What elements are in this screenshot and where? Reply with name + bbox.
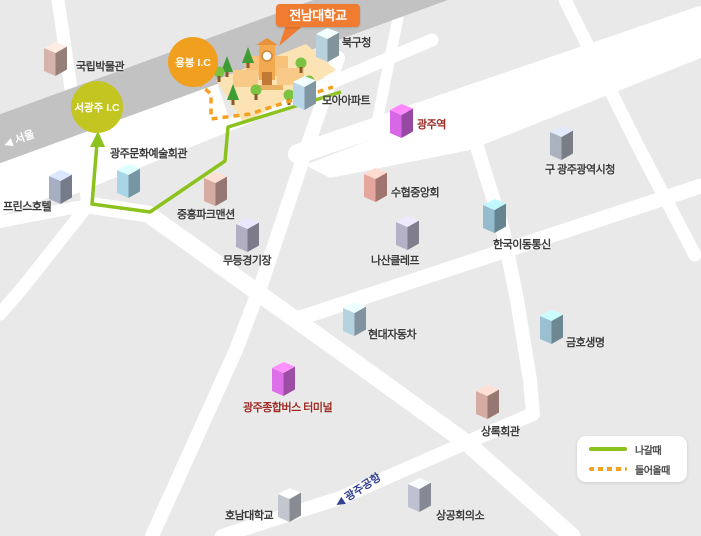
building-icon-suhyup-federation [364, 168, 387, 202]
campus-clock-icon [262, 51, 272, 61]
seogwangju-ic-marker: 서광주 I.C [71, 81, 123, 133]
building-icon-hyundai-motor [343, 302, 366, 336]
building-icon-korea-mobile-telecom [483, 199, 506, 233]
yongbong-ic-label: 용봉 I.C [175, 57, 211, 69]
map-canvas: 용봉 I.C 서광주 I.C 전남대학교 ◀ 서울 ◀ 광주공항 나갈때 들어올… [0, 0, 701, 536]
building-icon-bus-terminal [272, 362, 295, 396]
building-icon-sangnok-hall [476, 385, 499, 419]
building-icon-jungheung-park-mansion [204, 172, 227, 206]
building-icon-mudeung-stadium [236, 218, 259, 252]
map-graphic: 용봉 I.C 서광주 I.C [0, 0, 701, 536]
campus-entrance-door [262, 72, 272, 85]
building-icon-chamber-of-commerce [408, 478, 431, 512]
building-icon-culture-art-center [117, 164, 140, 198]
building-icon-prince-hotel [49, 170, 72, 204]
building-icon-moa-apartment [293, 76, 316, 110]
building-icon-honam-university [278, 488, 301, 522]
campus-left-wing [233, 70, 258, 87]
building-icon-kumho-life [540, 310, 563, 344]
seogwangju-ic-label: 서광주 I.C [74, 101, 120, 114]
building-icon-national-museum [44, 42, 67, 76]
building-icon-old-city-hall [550, 126, 573, 160]
building-icon-nasan-clef [396, 216, 419, 250]
building-icon-bukgu-office [316, 28, 339, 62]
yongbong-ic-marker: 용봉 I.C [168, 37, 218, 87]
building-icon-gwangju-station [390, 104, 413, 138]
